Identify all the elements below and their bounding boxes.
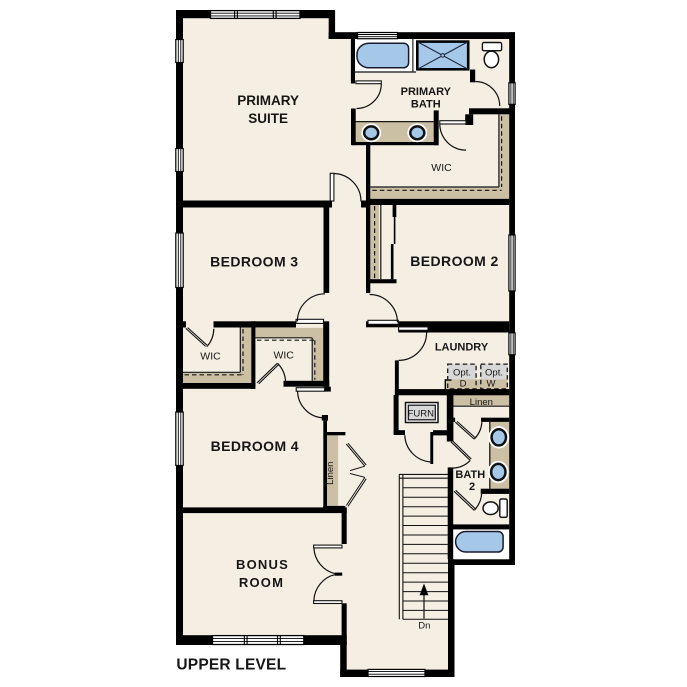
svg-text:D: D — [460, 379, 467, 390]
svg-text:PRIMARY: PRIMARY — [401, 86, 452, 98]
svg-text:WIC: WIC — [431, 162, 452, 174]
svg-text:BEDROOM 2: BEDROOM 2 — [410, 253, 498, 269]
svg-text:FURN: FURN — [408, 408, 435, 419]
svg-text:BATH: BATH — [411, 99, 441, 111]
svg-text:Dn: Dn — [418, 621, 430, 632]
svg-text:BATH: BATH — [455, 469, 485, 481]
svg-text:PRIMARY: PRIMARY — [237, 93, 299, 108]
svg-text:Opt.: Opt. — [485, 368, 503, 379]
svg-text:ROOM: ROOM — [239, 575, 284, 590]
svg-text:BEDROOM 3: BEDROOM 3 — [210, 253, 298, 269]
svg-text:UPPER LEVEL: UPPER LEVEL — [176, 656, 286, 673]
svg-text:WIC: WIC — [273, 349, 294, 361]
svg-text:2: 2 — [469, 481, 475, 493]
svg-text:Opt.: Opt. — [453, 368, 471, 379]
svg-text:Linen: Linen — [470, 397, 493, 408]
svg-text:BONUS: BONUS — [236, 557, 289, 572]
svg-text:LAUNDRY: LAUNDRY — [435, 342, 489, 354]
svg-text:WIC: WIC — [200, 351, 221, 363]
svg-text:SUITE: SUITE — [248, 111, 288, 126]
svg-text:Linen: Linen — [325, 462, 336, 485]
svg-text:BEDROOM 4: BEDROOM 4 — [211, 438, 299, 454]
svg-text:W: W — [487, 379, 496, 390]
